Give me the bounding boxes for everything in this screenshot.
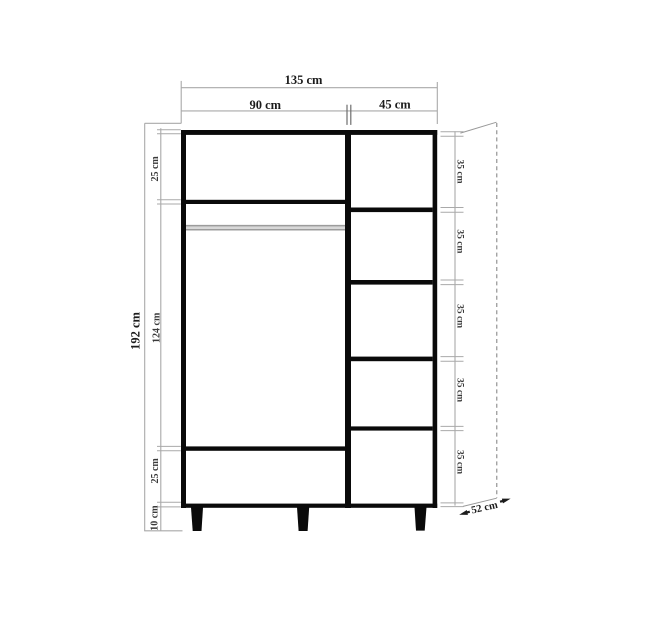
svg-text:25 cm: 25 cm (150, 156, 161, 182)
svg-text:135 cm: 135 cm (285, 73, 323, 87)
svg-text:10 cm: 10 cm (149, 505, 160, 531)
svg-text:25 cm: 25 cm (150, 458, 161, 484)
svg-text:35 cm: 35 cm (455, 229, 465, 253)
svg-text:90 cm: 90 cm (250, 98, 282, 112)
svg-text:35 cm: 35 cm (455, 159, 465, 183)
svg-text:192 cm: 192 cm (129, 311, 143, 349)
svg-text:35 cm: 35 cm (455, 304, 465, 328)
svg-text:124 cm: 124 cm (151, 312, 162, 343)
svg-text:35 cm: 35 cm (455, 378, 465, 402)
svg-text:35 cm: 35 cm (455, 450, 465, 474)
svg-text:45 cm: 45 cm (379, 98, 411, 112)
